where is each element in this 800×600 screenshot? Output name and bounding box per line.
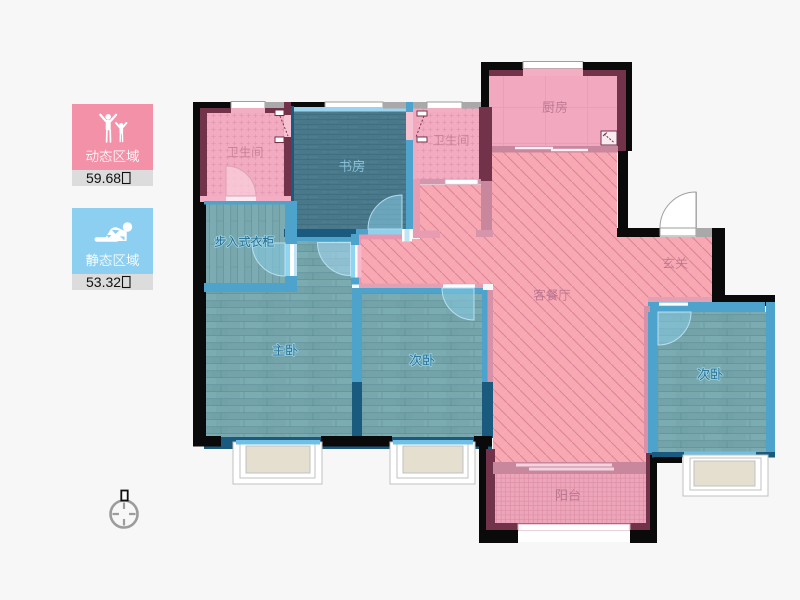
svg-text:59.68: 59.68 bbox=[86, 170, 121, 186]
svg-text:53.32: 53.32 bbox=[86, 274, 121, 290]
